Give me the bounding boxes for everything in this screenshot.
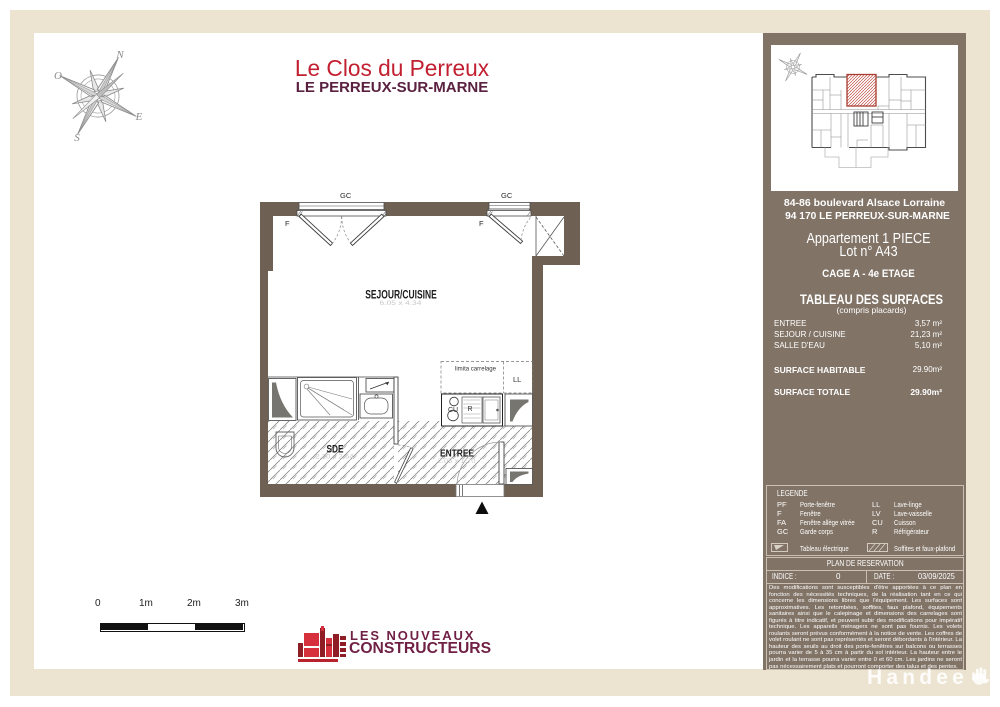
svg-text:F: F — [479, 219, 484, 228]
svg-text:GC: GC — [501, 191, 513, 200]
svg-text:F: F — [285, 219, 290, 228]
svg-text:CU: CU — [448, 407, 458, 414]
svg-text:O: O — [54, 70, 62, 82]
svg-text:limita carrelage: limita carrelage — [455, 366, 496, 373]
svg-text:E: E — [135, 111, 143, 123]
svg-text:R: R — [468, 406, 473, 413]
svg-text:N: N — [115, 49, 124, 61]
svg-text:6.05 x 4.34: 6.05 x 4.34 — [380, 300, 423, 307]
svg-text:S: S — [74, 132, 80, 144]
svg-text:GC: GC — [340, 191, 352, 200]
svg-text:2.20 x 2.64: 2.20 x 2.64 — [316, 454, 355, 461]
svg-text:LL: LL — [513, 375, 521, 384]
svg-text:2.05 x 1.70: 2.05 x 1.70 — [438, 458, 477, 465]
